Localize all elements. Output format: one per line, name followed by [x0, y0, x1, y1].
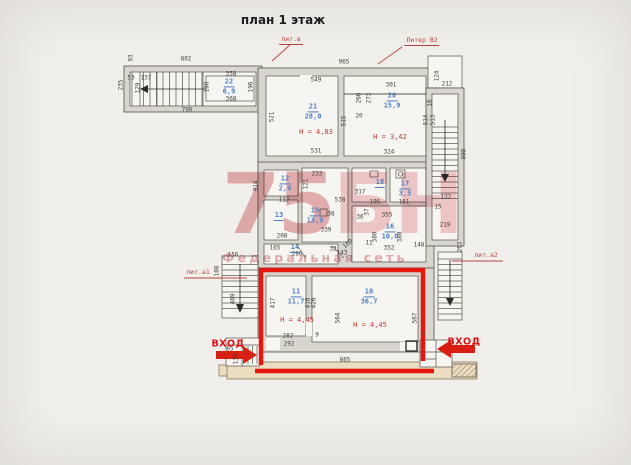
red-annotations [0, 0, 631, 465]
page-title: план 1 этаж [241, 13, 325, 27]
entrance-arrow-left-icon [216, 346, 257, 364]
highlighted-premises-outline [255, 268, 434, 371]
floor-plan-scan: 75БН Федеральная сеть 802939652355313712… [0, 0, 631, 465]
entrance-arrow-right-icon [437, 340, 475, 358]
liter-leader-lines [184, 44, 503, 278]
